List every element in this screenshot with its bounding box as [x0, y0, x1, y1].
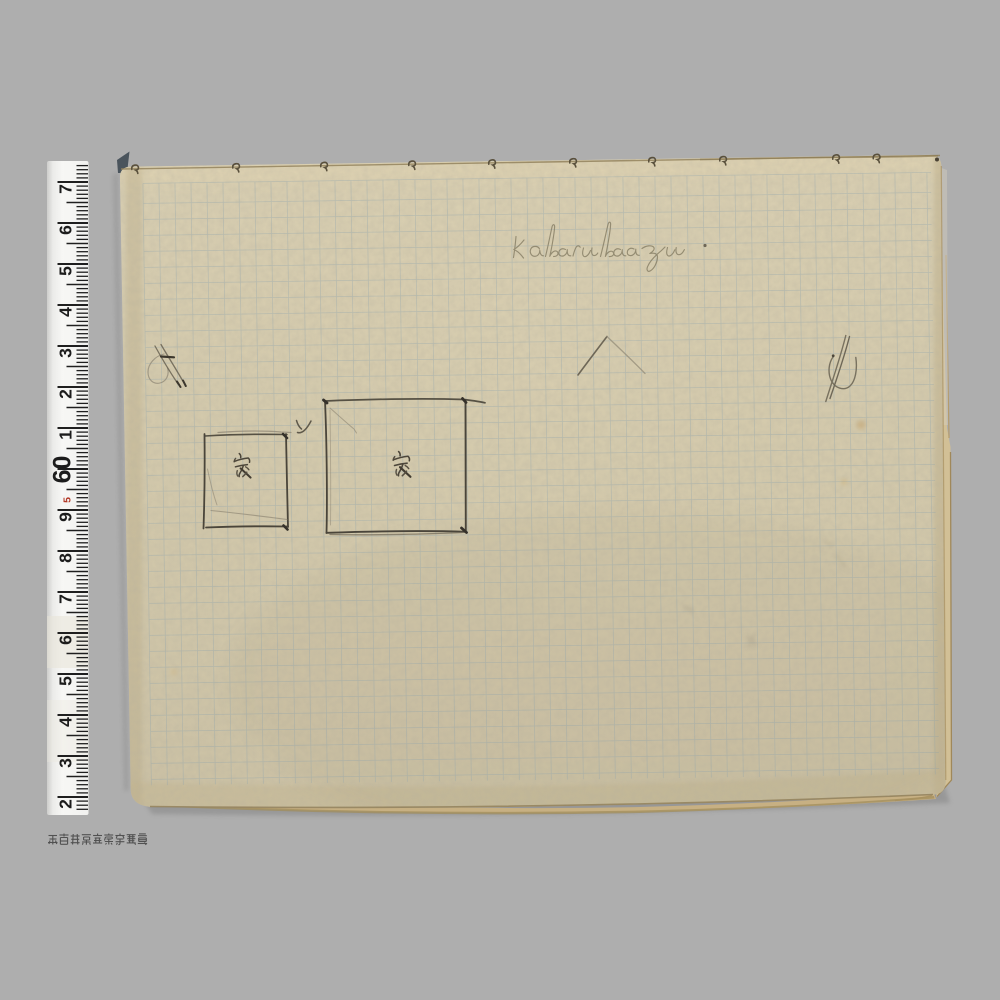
svg-text:60: 60 — [49, 456, 77, 484]
svg-text:5: 5 — [56, 676, 76, 686]
svg-text:3: 3 — [56, 348, 76, 358]
svg-text:8: 8 — [56, 553, 76, 563]
svg-text:6: 6 — [56, 225, 76, 235]
svg-text:6: 6 — [56, 635, 76, 645]
svg-text:3: 3 — [56, 758, 76, 768]
svg-text:4: 4 — [56, 307, 76, 317]
svg-text:7: 7 — [56, 184, 76, 194]
svg-text:7: 7 — [56, 594, 76, 604]
svg-text:4: 4 — [56, 717, 76, 727]
svg-text:5: 5 — [56, 266, 76, 276]
svg-text:5: 5 — [62, 497, 74, 503]
svg-text:1: 1 — [56, 430, 76, 440]
svg-text:9: 9 — [56, 512, 76, 522]
svg-text:2: 2 — [56, 799, 76, 809]
svg-text:2: 2 — [56, 389, 76, 399]
